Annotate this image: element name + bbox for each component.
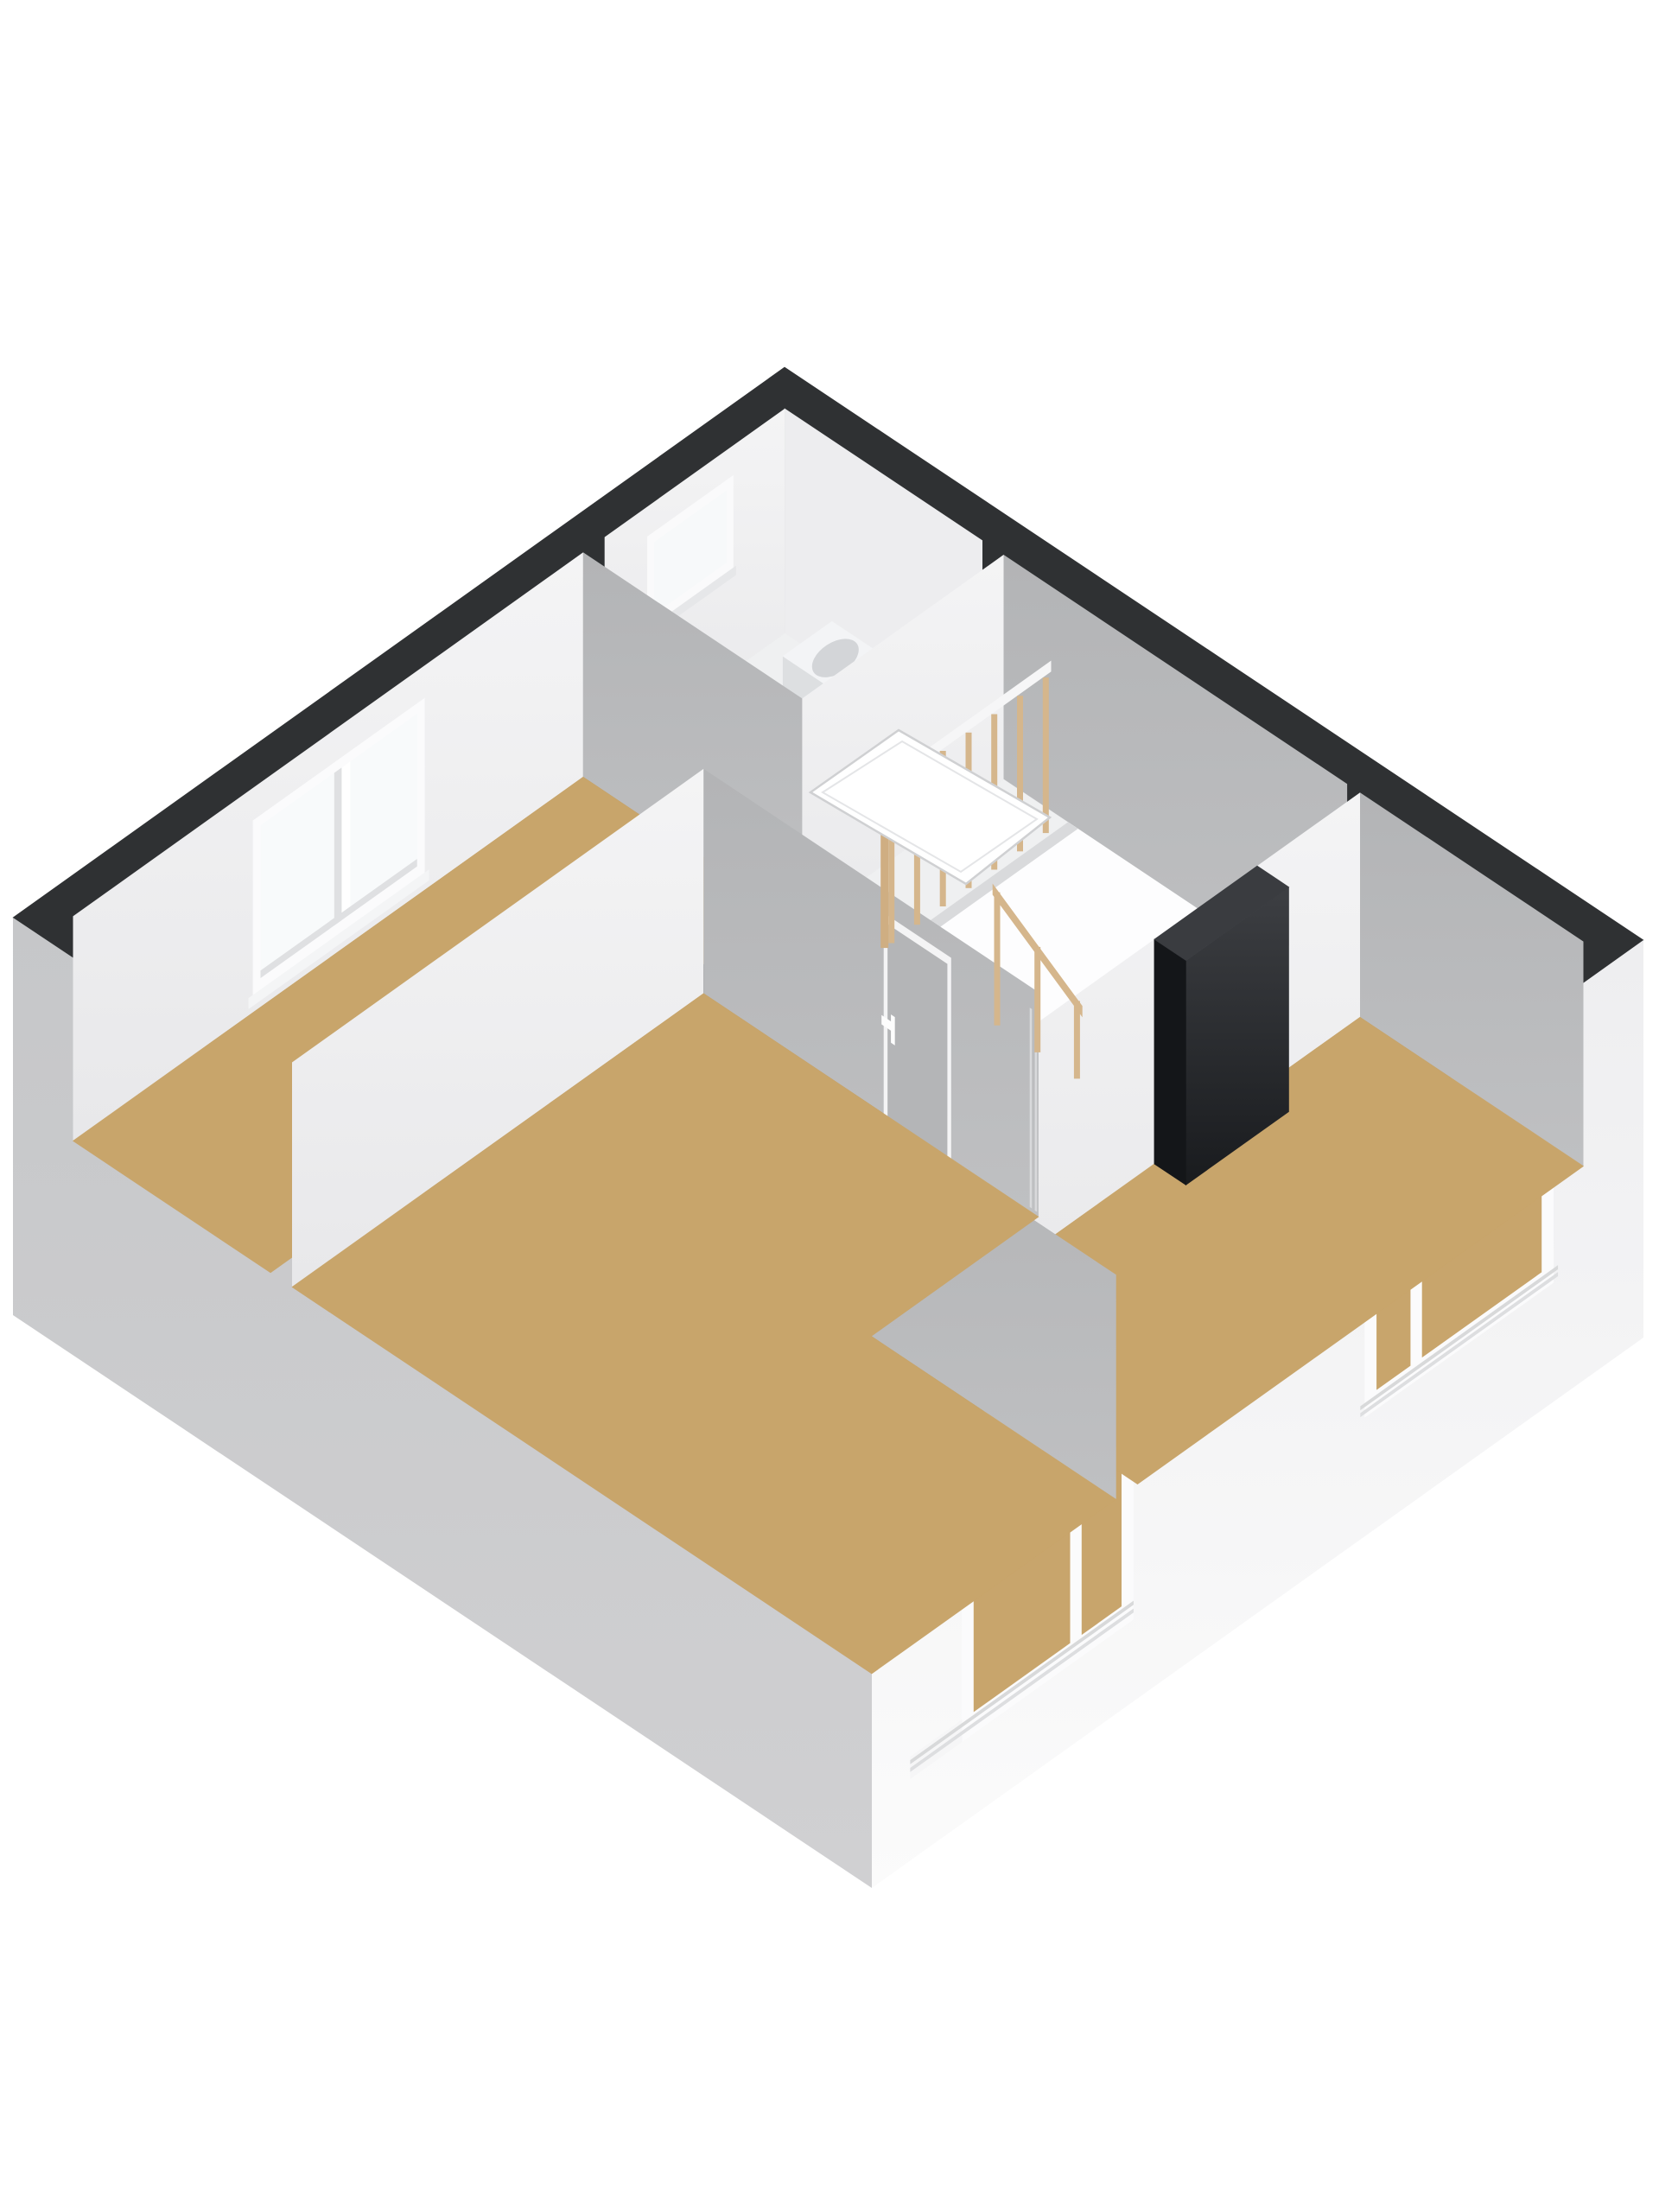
floorplan-page bbox=[0, 0, 1659, 2212]
door-leaf bbox=[888, 925, 948, 1156]
window-bedroom-left-sash-bar bbox=[341, 762, 350, 920]
chimney-side-south bbox=[1154, 939, 1186, 1185]
floorplan-3d-figure bbox=[0, 0, 1659, 2212]
stair-rail-post-2 bbox=[1034, 947, 1040, 1052]
window-bedroom-left-sash-bar-2 bbox=[334, 768, 341, 925]
wall-seam-highlight bbox=[1030, 1008, 1032, 1208]
floorplan-3d-scene bbox=[0, 0, 1659, 2212]
stair-baluster-1 bbox=[1043, 677, 1049, 833]
stair-rail-post-1 bbox=[995, 893, 1001, 1026]
